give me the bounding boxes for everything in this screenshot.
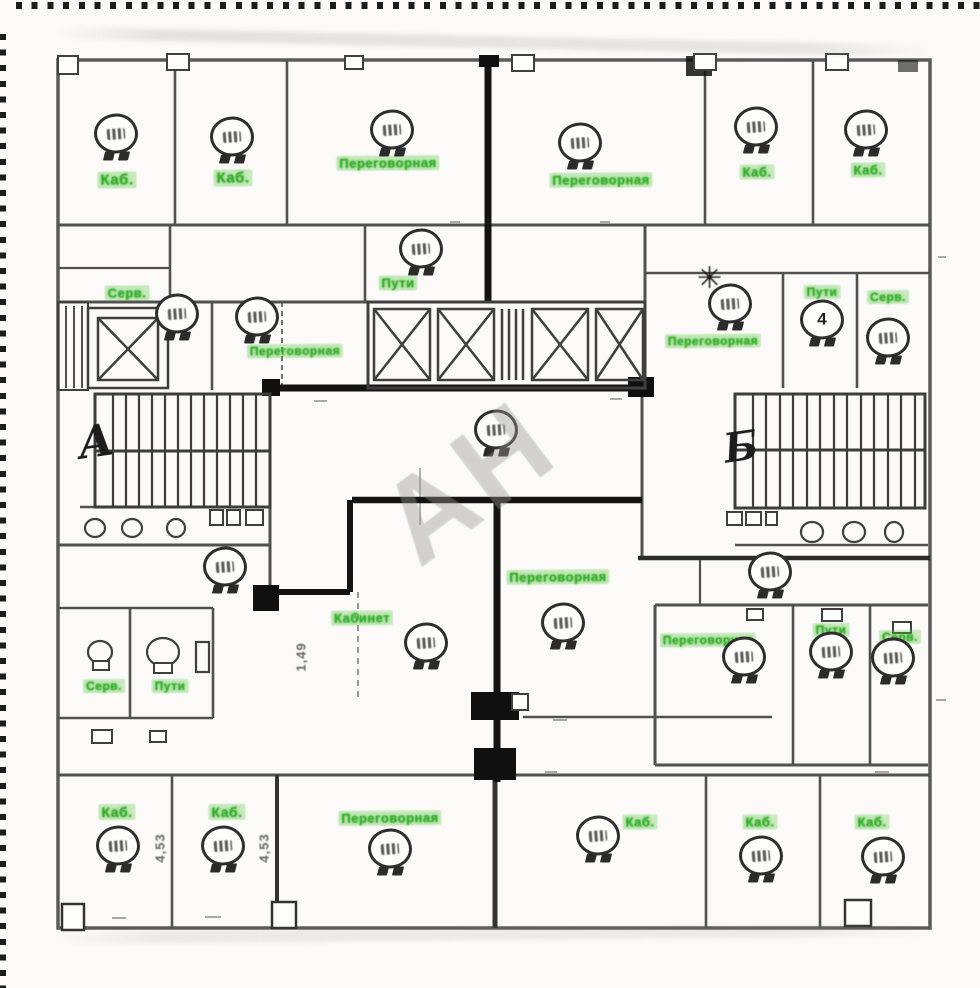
balloon-circle: 4 (800, 300, 844, 340)
room-label: Переговорная (506, 569, 609, 585)
room-number-balloon (861, 837, 905, 884)
balloon-value (822, 645, 841, 657)
elevator-bank (368, 302, 645, 388)
balloon-value (571, 136, 590, 148)
balloon-value (216, 560, 235, 572)
room-label: Кабинет (331, 610, 393, 626)
room-label: Каб. (850, 162, 885, 177)
room-number-balloon (201, 826, 245, 873)
balloon-value (884, 651, 903, 663)
room-label: Переговорная (338, 810, 441, 826)
elevator-shaft-left (58, 302, 168, 390)
balloon-circle (748, 552, 792, 592)
balloon-value (554, 616, 573, 628)
balloon-value (381, 842, 400, 854)
room-label: Каб. (742, 814, 777, 829)
room-label: Каб. (622, 814, 657, 829)
room-number-balloon (734, 107, 778, 154)
balloon-circle (404, 623, 448, 663)
balloon-value (747, 120, 766, 132)
balloon-value (214, 839, 233, 851)
room-number-balloon (722, 637, 766, 684)
room-number-balloon: 4 (800, 300, 844, 347)
balloon-circle (558, 123, 602, 163)
balloon-circle (155, 294, 199, 334)
room-number-balloon (748, 552, 792, 599)
floor-plan-drawing (0, 0, 980, 988)
dimension-text: 4,53 (153, 833, 168, 862)
room-label: Пути (152, 679, 189, 693)
room-label: Каб. (98, 804, 135, 820)
balloon-circle (844, 110, 888, 150)
room-number-balloon (474, 410, 518, 457)
balloon-circle (576, 816, 620, 856)
balloon-value (383, 123, 402, 135)
room-number-balloon (708, 284, 752, 331)
room-number-balloon (739, 836, 783, 883)
balloon-value (879, 331, 898, 343)
room-number-balloon (96, 826, 140, 873)
stair-marker-a: А (75, 414, 118, 469)
balloon-circle (96, 826, 140, 866)
balloon-value (248, 310, 267, 322)
balloon-value (412, 242, 431, 254)
room-number-balloon (399, 229, 443, 276)
balloon-value (589, 829, 608, 841)
balloon-value (487, 423, 506, 435)
room-number-balloon (210, 117, 254, 164)
room-number-balloon (558, 123, 602, 170)
balloon-circle (210, 117, 254, 157)
room-label: Пути (378, 275, 417, 290)
room-label: Каб. (854, 814, 889, 829)
balloon-circle (708, 284, 752, 324)
room-number-balloon (368, 829, 412, 876)
room-label: Переговорная (665, 334, 761, 349)
room-label: Переговорная (549, 172, 652, 188)
balloon-value (752, 849, 771, 861)
balloon-circle (370, 110, 414, 150)
balloon-value (761, 565, 780, 577)
balloon-circle (861, 837, 905, 877)
staircase-left (95, 394, 270, 507)
room-number-balloon (871, 638, 915, 685)
room-number-balloon (155, 294, 199, 341)
room-number-balloon (370, 110, 414, 157)
room-label: Серв. (867, 290, 909, 304)
stair-marker-b: Б (721, 421, 761, 472)
balloon-value (735, 650, 754, 662)
balloon-value (223, 130, 242, 142)
balloon-circle (203, 547, 247, 587)
room-number-balloon (203, 547, 247, 594)
room-number-balloon (576, 816, 620, 863)
balloon-circle (734, 107, 778, 147)
room-label: Каб. (97, 171, 136, 188)
dimension-text: 4,53 (257, 833, 272, 862)
room-label: Каб. (739, 164, 774, 179)
balloon-circle (235, 297, 279, 337)
balloon-value (109, 839, 128, 851)
room-number-balloon (809, 632, 853, 679)
balloon-circle (871, 638, 915, 678)
scanned-floor-plan-page: ✳ Каб.Каб.ПереговорнаяПереговорнаяКаб.Ка… (0, 0, 980, 988)
balloon-circle (94, 114, 138, 154)
room-number-balloon (94, 114, 138, 161)
room-label: Каб. (213, 169, 252, 186)
balloon-value: 4 (817, 310, 826, 330)
balloon-circle (474, 410, 518, 450)
balloon-circle (866, 318, 910, 358)
balloon-circle (201, 826, 245, 866)
staircase-right (735, 394, 925, 508)
balloon-value (417, 636, 436, 648)
room-label: Переговорная (336, 155, 439, 171)
room-label: Серв. (83, 679, 125, 693)
room-number-balloon (235, 297, 279, 344)
balloon-circle (541, 603, 585, 643)
room-label: Серв. (105, 285, 150, 300)
balloon-value (874, 850, 893, 862)
balloon-circle (722, 637, 766, 677)
balloon-circle (399, 229, 443, 269)
balloon-value (857, 123, 876, 135)
balloon-circle (368, 829, 412, 869)
room-number-balloon (866, 318, 910, 365)
balloon-circle (809, 632, 853, 672)
room-number-balloon (541, 603, 585, 650)
room-label: Каб. (208, 804, 245, 820)
room-label: Пути (804, 285, 841, 299)
balloon-value (107, 127, 126, 139)
balloon-value (721, 297, 740, 309)
room-label: Переговорная (247, 344, 343, 359)
balloon-circle (739, 836, 783, 876)
balloon-value (168, 307, 187, 319)
room-number-balloon (844, 110, 888, 157)
room-number-balloon (404, 623, 448, 670)
dimension-text: 1,49 (294, 642, 309, 671)
